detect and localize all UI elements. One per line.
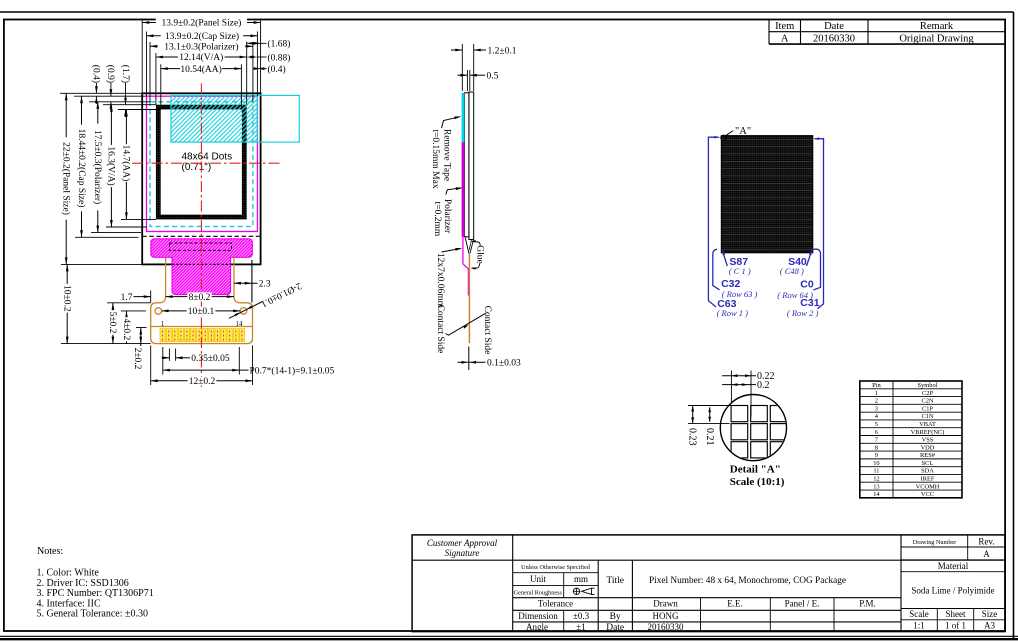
svg-text:Item: Item — [775, 21, 794, 32]
svg-text:A: A — [983, 549, 990, 559]
svg-text:Original Drawing: Original Drawing — [899, 33, 974, 44]
svg-text:Material: Material — [938, 561, 969, 571]
svg-text:Pin: Pin — [872, 382, 881, 389]
svg-text:0.35±0.05: 0.35±0.05 — [191, 354, 230, 364]
svg-text:0.21: 0.21 — [704, 428, 715, 446]
svg-text:10.54(AA): 10.54(AA) — [180, 64, 221, 75]
svg-text:Drawing Number: Drawing Number — [913, 539, 956, 546]
svg-text:8: 8 — [875, 444, 878, 451]
svg-text:0.23: 0.23 — [687, 428, 698, 446]
svg-text:13.9±0.2(Panel Size): 13.9±0.2(Panel Size) — [161, 18, 241, 29]
svg-text:Remark: Remark — [920, 21, 954, 32]
svg-text:2.3: 2.3 — [259, 279, 271, 289]
svg-text:1:1: 1:1 — [913, 621, 925, 631]
svg-text:14: 14 — [873, 491, 880, 498]
svg-text:12±0.2: 12±0.2 — [189, 377, 216, 387]
svg-text:SCL: SCL — [922, 460, 934, 467]
svg-text:( Row 64 ): ( Row 64 ) — [777, 290, 813, 300]
svg-text:Dimension: Dimension — [518, 611, 558, 621]
svg-text:Contact Side: Contact Side — [435, 305, 445, 354]
svg-text:VBREF(NC): VBREF(NC) — [911, 429, 945, 436]
svg-text:0.1±0.03: 0.1±0.03 — [487, 359, 521, 369]
svg-text:C2P: C2P — [922, 390, 933, 397]
svg-text:Tolerance: Tolerance — [538, 599, 573, 609]
svg-text:12: 12 — [873, 476, 879, 483]
svg-text:(0.88): (0.88) — [268, 52, 291, 63]
svg-text:1: 1 — [161, 320, 165, 328]
svg-text:Pixel Number: 48 x 64, Monochr: Pixel Number: 48 x 64, Monochrome, COG P… — [649, 576, 846, 586]
svg-text:Title: Title — [606, 576, 624, 586]
svg-text:5±0.2: 5±0.2 — [107, 312, 117, 334]
svg-text:2±0.2: 2±0.2 — [132, 348, 142, 370]
svg-text:13: 13 — [873, 483, 879, 490]
svg-text:20160330: 20160330 — [648, 622, 685, 632]
svg-text:mm: mm — [574, 574, 588, 584]
svg-text:(1.68): (1.68) — [268, 39, 291, 50]
svg-text:±0.3: ±0.3 — [573, 611, 590, 621]
svg-text:Rev.: Rev. — [978, 537, 994, 547]
svg-text:9: 9 — [875, 452, 878, 459]
svg-text:22±0.2(Panel Size): 22±0.2(Panel Size) — [61, 142, 72, 215]
svg-text:VSS: VSS — [922, 437, 934, 444]
svg-text:C1P: C1P — [922, 405, 933, 412]
svg-text:8±0.2: 8±0.2 — [189, 293, 211, 303]
svg-text:Unless Otherwise Specified: Unless Otherwise Specified — [521, 564, 591, 571]
svg-text:"A": "A" — [735, 126, 751, 137]
svg-text:10±0.1: 10±0.1 — [188, 307, 215, 317]
svg-text:Sheet: Sheet — [946, 609, 966, 619]
svg-text:20160330: 20160330 — [813, 33, 855, 44]
svg-text:0.5: 0.5 — [487, 72, 499, 82]
svg-text:General Roughness: General Roughness — [514, 590, 563, 597]
svg-text:VCC: VCC — [921, 491, 934, 498]
svg-text:Contact Side: Contact Side — [482, 306, 492, 355]
svg-text:t=0.15mm Max: t=0.15mm Max — [430, 129, 440, 188]
svg-text:Date: Date — [606, 623, 624, 633]
svg-text:( Row 63 ): ( Row 63 ) — [722, 289, 758, 299]
svg-text:13.9±0.2(Cap Size): 13.9±0.2(Cap Size) — [165, 31, 239, 42]
svg-text:Notes:: Notes: — [37, 546, 63, 557]
svg-text:6: 6 — [875, 429, 878, 436]
svg-text:C2N: C2N — [921, 398, 933, 405]
svg-text:(0.4): (0.4) — [91, 65, 102, 83]
svg-text:0.2: 0.2 — [757, 380, 770, 391]
svg-text:1: 1 — [875, 390, 878, 397]
svg-text:14.7(AA): 14.7(AA) — [121, 145, 132, 182]
svg-text:Customer Approval: Customer Approval — [427, 538, 498, 548]
svg-text:11: 11 — [873, 468, 879, 475]
svg-text:Symbol: Symbol — [918, 382, 938, 389]
svg-text:±1: ±1 — [576, 622, 585, 632]
svg-text:Date: Date — [824, 21, 844, 32]
svg-text:10: 10 — [873, 460, 879, 467]
svg-text:(1.7): (1.7) — [120, 65, 131, 83]
svg-text:Soda Lime / Polyimide: Soda Lime / Polyimide — [911, 586, 994, 596]
svg-text:Unit: Unit — [530, 574, 547, 584]
svg-text:(0.4): (0.4) — [268, 64, 286, 75]
svg-text:Signature: Signature — [445, 548, 480, 558]
svg-text:Size: Size — [982, 609, 998, 619]
svg-text:VDD: VDD — [921, 444, 935, 451]
svg-text:(0.9): (0.9) — [105, 65, 116, 83]
svg-text:Polarizer: Polarizer — [442, 199, 452, 234]
svg-text:C0: C0 — [800, 279, 814, 291]
svg-text:Remove Tape: Remove Tape — [442, 129, 452, 181]
svg-text:VCOMH: VCOMH — [916, 483, 940, 490]
svg-text:By: By — [610, 612, 621, 622]
svg-text:10±0.2: 10±0.2 — [62, 285, 72, 312]
svg-text:( Row 2 ): ( Row 2 ) — [787, 308, 819, 318]
svg-text:1.2±0.1: 1.2±0.1 — [488, 46, 517, 56]
svg-text:( C 1 ): ( C 1 ) — [729, 266, 751, 276]
svg-text:A: A — [781, 33, 789, 44]
svg-text:( Row 1 ): ( Row 1 ) — [717, 308, 749, 318]
svg-text:VBAT: VBAT — [919, 421, 936, 428]
svg-text:( C48 ): ( C48 ) — [780, 266, 804, 276]
svg-text:16.3(V/A): 16.3(V/A) — [106, 146, 117, 185]
svg-text:Scale: Scale — [909, 609, 929, 619]
svg-text:13.1±0.3(Polarizer): 13.1±0.3(Polarizer) — [164, 42, 238, 53]
svg-text:Glue: Glue — [474, 245, 484, 263]
svg-text:17.5±0.3(Polarizer): 17.5±0.3(Polarizer) — [92, 130, 103, 204]
svg-text:48x64 Dots: 48x64 Dots — [182, 151, 233, 162]
svg-text:P.M.: P.M. — [859, 599, 876, 609]
svg-text:14: 14 — [236, 320, 244, 328]
svg-text:1.7: 1.7 — [121, 293, 133, 303]
svg-text:3: 3 — [875, 405, 878, 412]
svg-text:1 of 1: 1 of 1 — [945, 621, 966, 631]
svg-text:12x7x0.06mm: 12x7x0.06mm — [435, 253, 445, 309]
svg-text:4±0.2: 4±0.2 — [121, 318, 131, 340]
svg-text:A3: A3 — [984, 621, 995, 631]
svg-text:Panel / E.: Panel / E. — [785, 599, 820, 609]
svg-text:12.14(V/A): 12.14(V/A) — [179, 52, 223, 63]
svg-text:5. General Tolerance: ±0.30: 5. General Tolerance: ±0.30 — [37, 609, 149, 620]
svg-text:t=0.2mm: t=0.2mm — [432, 202, 442, 237]
svg-text:C1N: C1N — [921, 413, 933, 420]
svg-text:Detail "A": Detail "A" — [730, 464, 781, 476]
svg-text:P0.7*(14-1)=9.1±0.05: P0.7*(14-1)=9.1±0.05 — [250, 365, 335, 376]
svg-text:IREF: IREF — [921, 476, 935, 483]
svg-text:Drawn: Drawn — [653, 599, 678, 609]
svg-text:Angle: Angle — [526, 622, 548, 632]
svg-text:18.44±0.2(Cap Size): 18.44±0.2(Cap Size) — [76, 129, 87, 208]
svg-text:HONG: HONG — [653, 611, 679, 621]
svg-text:2: 2 — [875, 398, 878, 405]
svg-text:E.E.: E.E. — [727, 599, 743, 609]
svg-text:RES#: RES# — [920, 452, 936, 459]
svg-text:5: 5 — [875, 421, 878, 428]
svg-text:SDA: SDA — [921, 468, 934, 475]
svg-text:Scale (10:1): Scale (10:1) — [730, 476, 785, 488]
